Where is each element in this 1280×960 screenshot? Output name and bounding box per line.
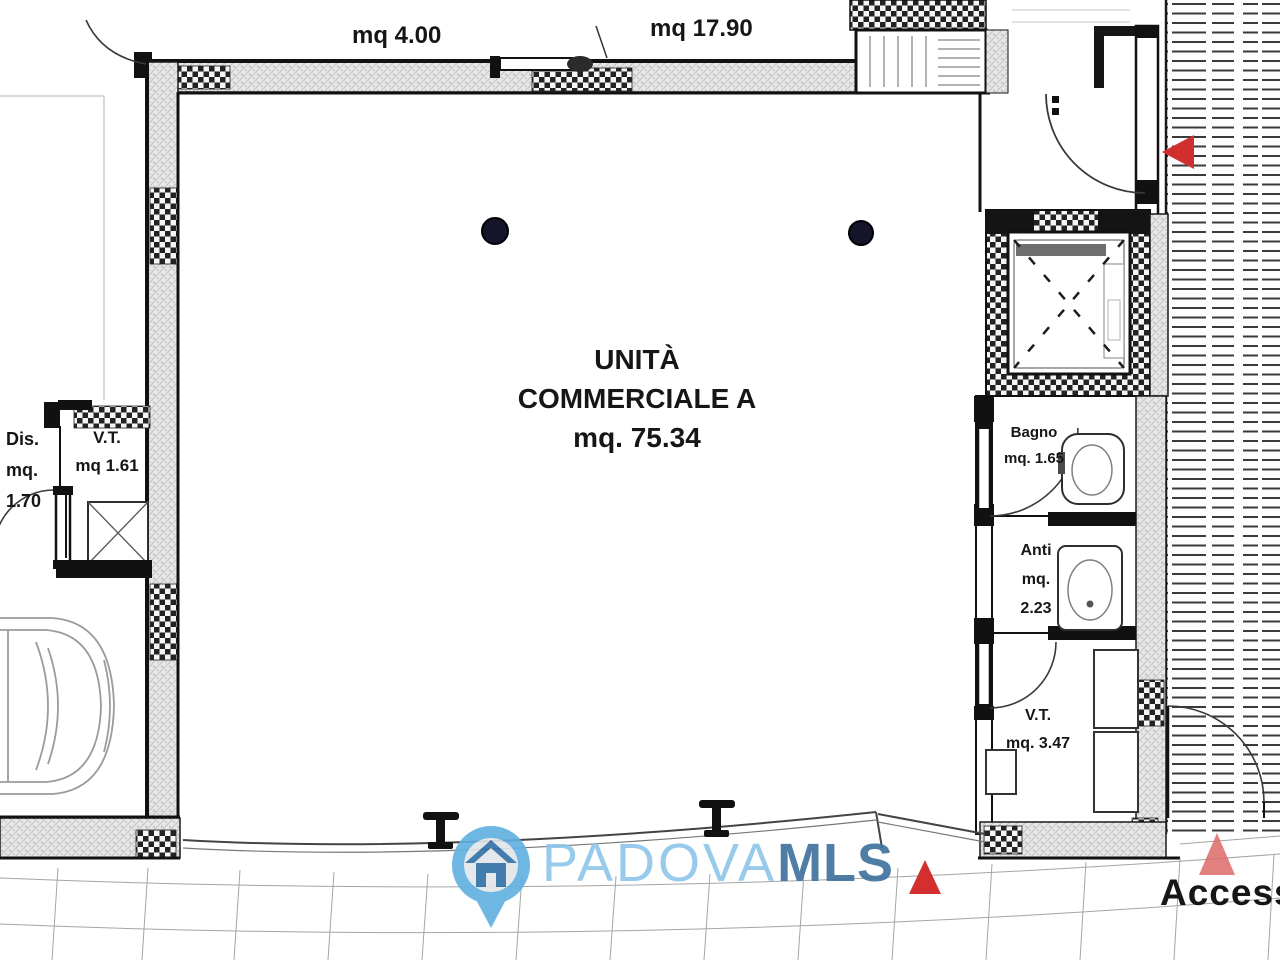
unit-title-line2: COMMERCIALE A [462,379,812,418]
room-dis-area: 1.70 [6,486,41,517]
room-dis-name: Dis. [6,424,41,455]
room-bagno-area: mq. 1.65 [994,446,1074,472]
floorplan-drawing [0,0,1280,960]
room-dis-unit: mq. [6,455,41,486]
area-label-top-left: mq 4.00 [352,22,441,50]
area-label-top-right: mq 17.90 [650,15,753,43]
arrow-up-pink-icon [1199,833,1235,875]
room-label-bagno: Bagno mq. 1.65 [994,420,1074,472]
floorplan-page: mq 4.00 mq 17.90 UNITÀ COMMERCIALE A mq.… [0,0,1280,960]
room-vt-right-area: mq. 3.47 [994,730,1082,758]
room-label-vt-right: V.T. mq. 3.47 [994,702,1082,758]
room-label-dis: Dis. mq. 1.70 [6,424,41,517]
room-bagno-name: Bagno [994,420,1074,446]
room-label-anti: Anti mq. 2.23 [1006,536,1066,623]
room-anti-area: 2.23 [1006,594,1066,623]
unit-title-line1: UNITÀ [462,340,812,379]
bottom-left-wall [0,817,180,858]
room-label-vt-left: V.T. mq 1.61 [68,424,146,480]
watermark-brand-suffix: MLS [777,833,894,893]
anti-fixtures [1058,546,1122,630]
access-label: Accesso [1160,872,1280,914]
left-wall [147,62,178,858]
arrow-up-icon [909,860,941,894]
watermark-brand-name: PADOVA [542,833,777,893]
unit-area: mq. 75.34 [462,418,812,457]
neighbor-unit-lines [0,96,104,400]
unit-title-block: UNITÀ COMMERCIALE A mq. 75.34 [462,340,812,457]
room-vt-left-area: mq 1.61 [68,452,146,480]
car [0,618,114,794]
room-vt-left-name: V.T. [68,424,146,452]
watermark: PADOVAMLS [448,824,894,930]
room-anti-name: Anti [1006,536,1066,565]
columns [482,218,873,245]
elevator-shaft [986,210,1150,396]
room-anti-unit: mq. [1006,565,1066,594]
stairs-block [850,0,1130,93]
room-vt-right-name: V.T. [994,702,1082,730]
ramp-area [1166,0,1280,834]
house-pin-icon [448,824,534,930]
watermark-brand: PADOVAMLS [542,832,894,894]
